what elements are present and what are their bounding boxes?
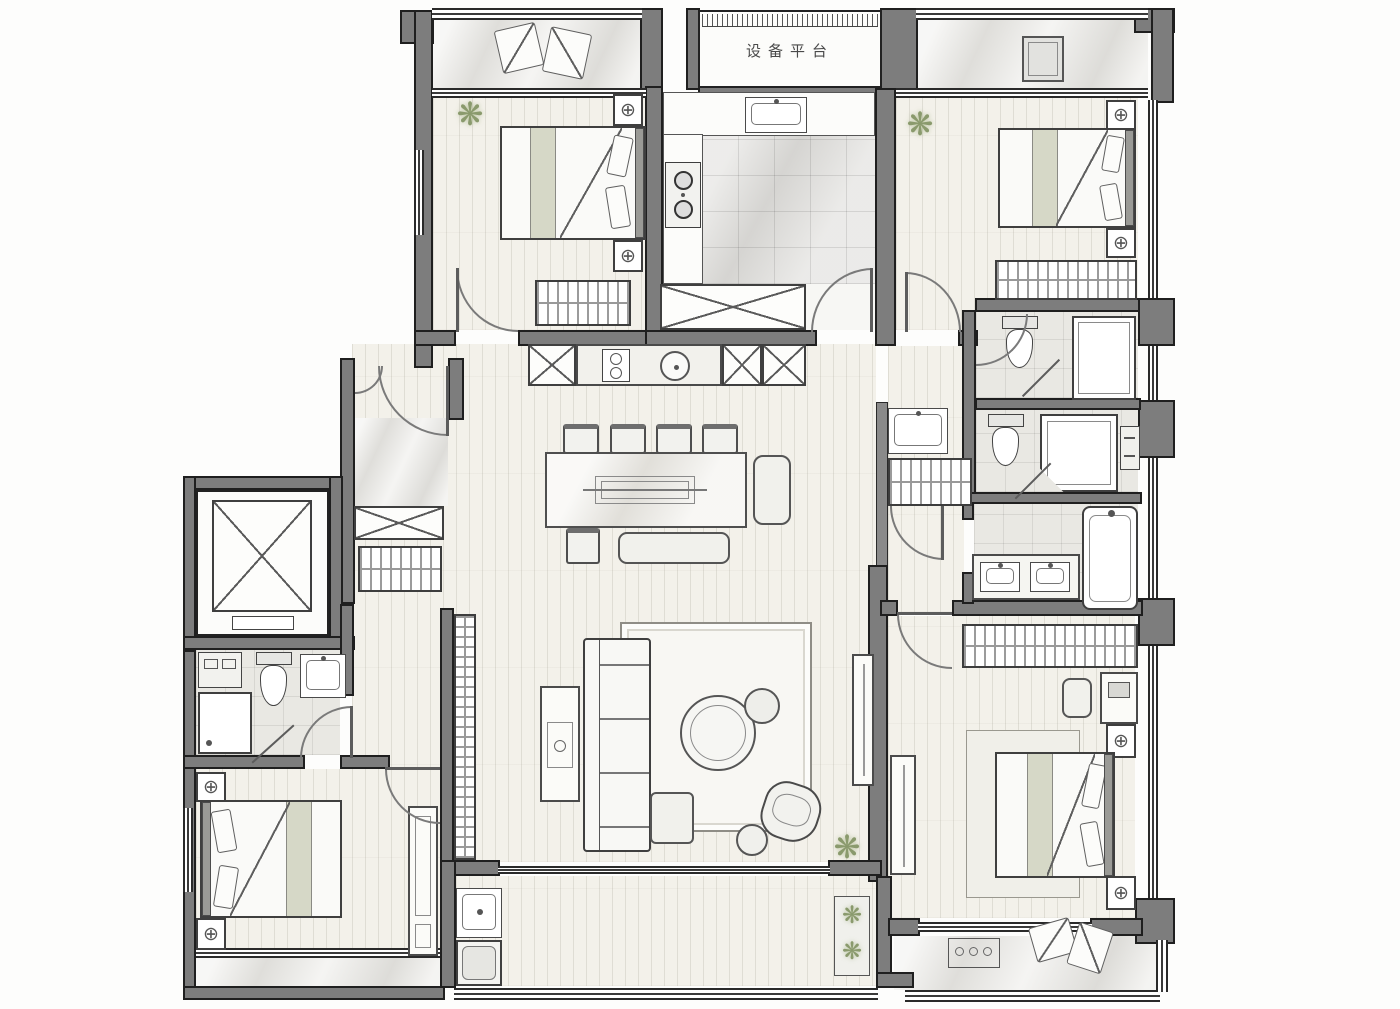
small-sink	[602, 349, 630, 382]
plant-icon: ❋	[839, 937, 865, 967]
console-table	[540, 686, 580, 802]
toilet	[256, 652, 292, 708]
shower	[1072, 316, 1136, 400]
shower	[198, 692, 252, 754]
ac-unit-icon: ⊕	[196, 772, 226, 802]
dining-chair	[656, 424, 692, 454]
window	[196, 948, 440, 958]
balcony-bottom-right-floor	[894, 936, 1158, 990]
window	[896, 88, 1148, 98]
ac-unit-icon: ⊕	[196, 918, 226, 950]
tv-cabinet	[890, 755, 916, 875]
wall-segment	[183, 755, 305, 769]
dining-chair	[563, 424, 599, 454]
window	[432, 8, 642, 20]
vent-hatch	[702, 14, 878, 27]
wall-segment	[1138, 298, 1175, 346]
balcony-rug	[1022, 36, 1064, 82]
ac-unit-icon: ⊕	[613, 94, 643, 126]
door-leaf	[446, 366, 449, 436]
floor-plan: 设备平台 ❋ ⊕ ⊕	[0, 0, 1400, 1009]
window	[1148, 646, 1158, 898]
stove	[665, 162, 701, 228]
door-leaf	[350, 706, 353, 758]
hall-closet	[888, 458, 972, 506]
plant-icon: ❋	[828, 828, 866, 866]
dining-table	[545, 452, 747, 528]
balcony-rail	[1156, 940, 1168, 992]
plant-icon: ❋	[898, 102, 942, 146]
wall-segment	[962, 504, 974, 520]
dining-armchair	[753, 455, 791, 525]
wall-segment	[880, 8, 918, 92]
planter: ❋ ❋	[834, 896, 870, 976]
sofa-back	[585, 640, 600, 850]
kitchen-island	[660, 284, 806, 330]
wall-segment	[975, 298, 1143, 312]
tray	[948, 938, 1000, 968]
wardrobe	[995, 260, 1137, 300]
wall-segment	[876, 972, 914, 988]
wall-segment	[440, 860, 456, 988]
window	[183, 808, 193, 892]
door-leaf	[897, 612, 952, 615]
toilet	[988, 414, 1024, 468]
ac-unit-icon: ⊕	[613, 240, 643, 272]
bed	[200, 800, 342, 918]
sofa	[583, 638, 651, 852]
corridor-closet	[454, 614, 476, 860]
ac-unit-icon: ⊕	[1106, 228, 1136, 258]
window	[1148, 458, 1158, 598]
equipment-platform-label: 设备平台	[700, 40, 880, 61]
double-vanity	[972, 554, 1080, 600]
burner	[674, 171, 693, 190]
balcony-bottom-floor	[456, 876, 878, 986]
dining-chair	[566, 528, 600, 564]
wall-segment	[962, 492, 1142, 504]
elevator-door	[232, 616, 294, 630]
wall-segment	[1138, 400, 1175, 458]
wall-segment	[440, 608, 454, 862]
wall-segment	[448, 358, 464, 420]
cabinet	[722, 344, 762, 386]
bed	[998, 128, 1136, 228]
wall-segment	[183, 476, 196, 650]
window	[414, 150, 424, 235]
balcony-bottom-left-floor	[196, 958, 440, 986]
hall-vanity	[888, 408, 948, 454]
door-leaf	[870, 268, 873, 332]
desk	[1100, 672, 1138, 724]
shelf	[1120, 426, 1140, 470]
foyer-closet	[358, 546, 442, 592]
wall-segment	[183, 476, 343, 490]
wardrobe	[962, 624, 1138, 668]
door-leaf	[905, 272, 908, 332]
washing-machine	[456, 940, 502, 986]
wall-segment	[640, 8, 663, 92]
bathtub	[1082, 506, 1138, 610]
cabinet	[528, 344, 576, 386]
dresser	[535, 280, 631, 326]
wall-segment	[1138, 598, 1175, 646]
dining-bench	[618, 532, 730, 564]
ac-unit-icon: ⊕	[1106, 100, 1136, 130]
bed-throw	[1056, 130, 1108, 226]
bathroom-sink	[300, 654, 346, 698]
ac-unit-icon: ⊕	[1106, 876, 1136, 910]
wall-segment	[183, 986, 445, 1000]
desk-chair	[1062, 678, 1092, 718]
basin	[1030, 562, 1070, 592]
plant-icon: ❋	[450, 94, 490, 134]
laptop	[1108, 682, 1130, 698]
bar-counter	[576, 344, 722, 386]
sofa-chaise	[650, 792, 694, 844]
wall-segment	[888, 918, 920, 936]
kitchen-sink	[745, 97, 807, 133]
balcony-rail	[454, 988, 878, 1000]
ottoman	[736, 824, 768, 856]
equipment-platform: 设备平台	[698, 10, 882, 88]
wall-segment	[875, 88, 896, 346]
door-leaf	[941, 506, 944, 560]
wall-segment	[876, 402, 888, 568]
window	[1148, 346, 1158, 400]
wardrobe	[408, 806, 438, 956]
sliding-door-track	[498, 866, 830, 874]
dining-chair	[610, 424, 646, 454]
basin	[980, 562, 1020, 592]
tv-console	[852, 654, 874, 786]
round-sink	[660, 351, 690, 381]
window	[916, 8, 1148, 20]
wall-segment	[1151, 8, 1174, 103]
laundry-sink	[456, 888, 502, 938]
dining-chair	[702, 424, 738, 454]
bath-cabinet	[198, 652, 242, 688]
balcony-rail	[905, 990, 1160, 1002]
burner	[674, 200, 693, 219]
shoe-cabinet	[354, 506, 444, 540]
wall-segment	[880, 600, 898, 616]
kitchen-tile	[702, 134, 875, 284]
side-table	[744, 688, 780, 724]
elevator-shaft	[212, 500, 312, 612]
door-leaf	[456, 268, 459, 332]
wall-segment	[183, 636, 355, 650]
cabinet	[762, 344, 806, 386]
bed	[995, 752, 1115, 878]
wall-segment	[414, 330, 456, 346]
door-leaf	[385, 767, 440, 770]
bed-throw	[230, 802, 290, 916]
bed	[500, 126, 646, 240]
plant-icon: ❋	[839, 901, 865, 931]
window	[1148, 100, 1158, 298]
